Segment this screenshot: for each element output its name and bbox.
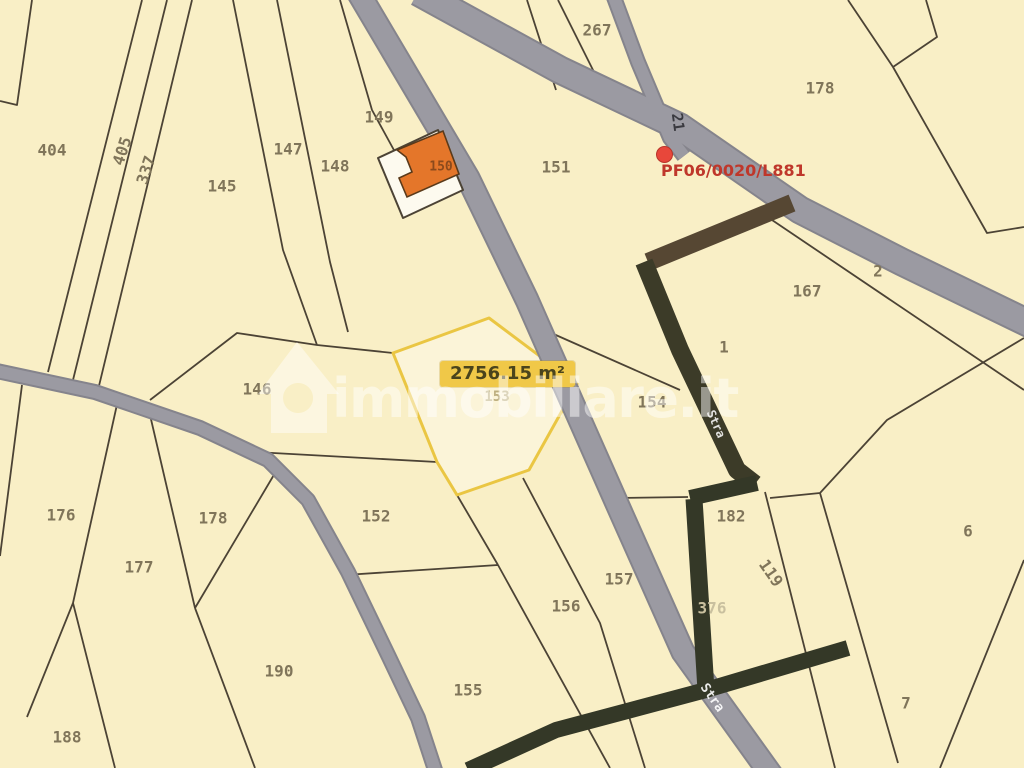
parcel-label-151: 151 [542,158,571,177]
parcel-label-178: 178 [199,509,228,528]
road-label: Stra [704,408,729,440]
parcel-label-152: 152 [362,507,391,526]
parcel-label-177: 177 [125,558,154,577]
parcel-label-337: 337 [132,153,159,186]
parcel-label-145: 145 [208,177,237,196]
parcel-label-188: 188 [53,728,82,747]
parcel-label-2: 2 [873,262,883,281]
road-label: 21 [668,112,688,132]
parcel-label-147: 147 [274,140,303,159]
parcel-label-167: 167 [793,282,822,301]
poi-marker-label: PF06/0020/L881 [661,161,806,180]
parcel-label-190: 190 [265,662,294,681]
parcel-label-154: 154 [638,393,667,412]
parcel-label-178: 178 [806,79,835,98]
parcel-label-1: 1 [719,338,729,357]
parcel-label-150: 150 [429,160,452,175]
parcel-label-376: 376 [698,599,727,618]
parcel-label-6: 6 [963,522,973,541]
parcel-label-149: 149 [365,108,394,127]
parcel-label-405: 405 [108,134,135,167]
parcel-label-153: 153 [484,389,509,405]
parcel-label-146: 146 [243,380,272,399]
area-label-text: 2756.15 m² [450,363,565,384]
cadastral-map-stage[interactable]: 4044053371451471481491502671781512167114… [0,0,1024,768]
parcel-label-148: 148 [321,157,350,176]
area-label: 2756.15 m² [440,361,575,387]
parcel-label-155: 155 [454,681,483,700]
parcel-label-176: 176 [47,506,76,525]
parcel-label-182: 182 [717,507,746,526]
parcel-label-404: 404 [38,141,67,160]
parcel-label-267: 267 [583,21,612,40]
parcel-label-157: 157 [605,570,634,589]
parcel-label-7: 7 [901,694,911,713]
parcel-label-119: 119 [755,556,787,591]
parcel-label-156: 156 [552,597,581,616]
road-label: Stra [697,681,727,715]
